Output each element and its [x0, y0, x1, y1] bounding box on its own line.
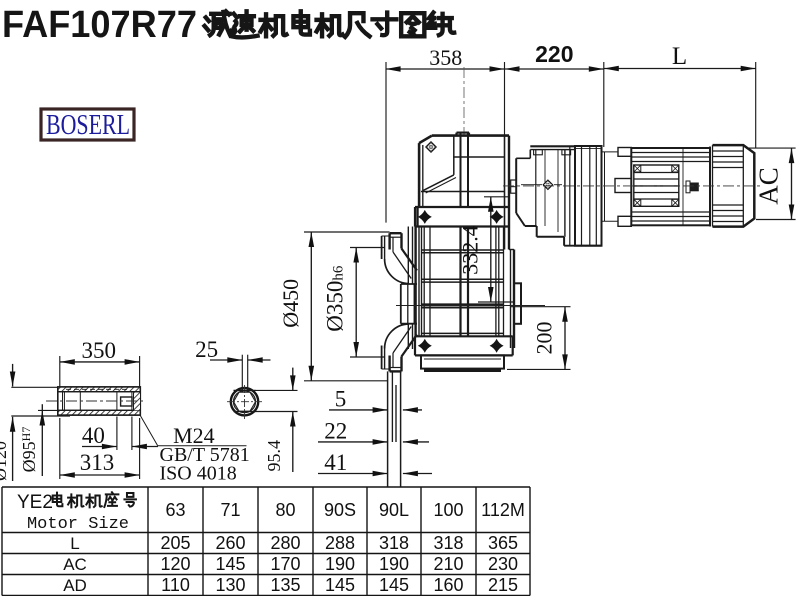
- svg-text:210: 210: [433, 554, 463, 574]
- svg-text:313: 313: [80, 450, 115, 475]
- svg-text:365: 365: [488, 533, 518, 553]
- svg-text:41: 41: [324, 450, 347, 475]
- svg-text:112M: 112M: [481, 500, 525, 520]
- svg-text:318: 318: [433, 533, 463, 553]
- svg-text:L: L: [70, 534, 79, 553]
- svg-text:332.4: 332.4: [458, 225, 483, 275]
- svg-text:130: 130: [215, 575, 245, 595]
- svg-text:BOSERL: BOSERL: [46, 110, 130, 141]
- svg-text:95.4: 95.4: [264, 440, 284, 472]
- svg-text:90S: 90S: [324, 500, 356, 520]
- svg-text:80: 80: [275, 500, 295, 520]
- svg-text:205: 205: [160, 533, 190, 553]
- svg-text:Motor Size: Motor Size: [27, 515, 129, 534]
- svg-text:135: 135: [270, 575, 300, 595]
- svg-text:280: 280: [270, 533, 300, 553]
- svg-text:90L: 90L: [379, 500, 409, 520]
- svg-text:AD: AD: [63, 576, 87, 595]
- svg-text:71: 71: [220, 500, 240, 520]
- svg-text:40: 40: [82, 423, 105, 448]
- svg-text:260: 260: [215, 533, 245, 553]
- svg-text:160: 160: [433, 575, 463, 595]
- svg-text:220: 220: [535, 41, 573, 67]
- svg-text:Ø450: Ø450: [278, 279, 303, 328]
- svg-text:318: 318: [379, 533, 409, 553]
- svg-text:190: 190: [325, 554, 355, 574]
- svg-text:100: 100: [433, 500, 463, 520]
- svg-text:200: 200: [531, 322, 556, 355]
- svg-text:ISO 4018: ISO 4018: [160, 463, 237, 485]
- svg-text:145: 145: [379, 575, 409, 595]
- svg-text:145: 145: [215, 554, 245, 574]
- svg-text:350: 350: [82, 338, 117, 363]
- svg-text:25: 25: [195, 337, 218, 362]
- svg-text:YE2: YE2: [17, 492, 53, 513]
- svg-text:FAF107R77: FAF107R77: [2, 4, 197, 46]
- svg-text:190: 190: [379, 554, 409, 574]
- svg-text:110: 110: [161, 575, 190, 595]
- svg-text:63: 63: [165, 500, 185, 520]
- svg-text:L: L: [672, 43, 687, 70]
- svg-text:AC: AC: [63, 555, 87, 574]
- svg-text:145: 145: [325, 575, 355, 595]
- svg-text:22: 22: [324, 418, 347, 443]
- svg-text:Ø95H7: Ø95H7: [19, 427, 39, 473]
- svg-text:288: 288: [325, 533, 355, 553]
- svg-text:215: 215: [488, 575, 518, 595]
- svg-text:358: 358: [429, 45, 462, 70]
- svg-text:170: 170: [270, 554, 300, 574]
- svg-text:230: 230: [488, 554, 518, 574]
- svg-text:Ø350h6: Ø350h6: [323, 265, 348, 332]
- svg-text:120: 120: [160, 554, 190, 574]
- svg-text:5: 5: [335, 386, 347, 411]
- svg-text:Ø120: Ø120: [0, 441, 10, 481]
